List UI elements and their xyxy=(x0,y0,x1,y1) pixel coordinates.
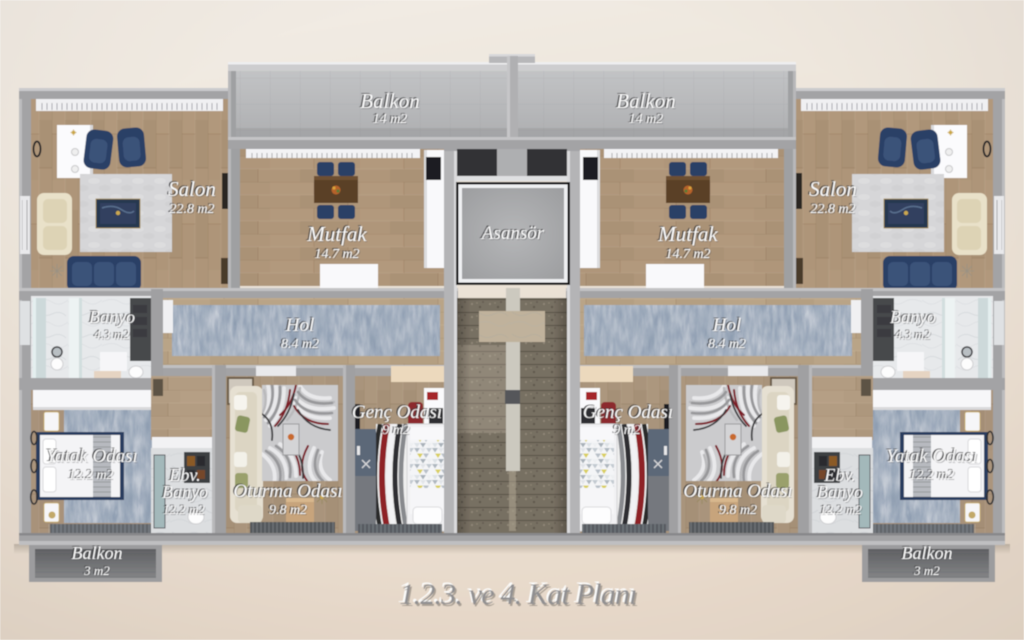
svg-text:9 m2: 9 m2 xyxy=(382,423,410,438)
svg-text:12.2 m2: 12.2 m2 xyxy=(163,502,205,517)
svg-text:14 m2: 14 m2 xyxy=(373,112,408,127)
svg-text:12.2 m2: 12.2 m2 xyxy=(820,502,862,517)
svg-text:14.7 m2: 14.7 m2 xyxy=(314,247,359,262)
svg-text:Balkon: Balkon xyxy=(360,89,419,113)
svg-text:4.3 m2: 4.3 m2 xyxy=(895,327,931,342)
svg-text:Genç Odası: Genç Odası xyxy=(583,402,673,423)
svg-text:Yatak Odası: Yatak Odası xyxy=(46,446,138,467)
svg-text:22.8 m2: 22.8 m2 xyxy=(810,202,855,217)
svg-text:3 m2: 3 m2 xyxy=(83,563,110,578)
svg-text:Banyo: Banyo xyxy=(162,482,208,502)
svg-text:Banyo: Banyo xyxy=(890,307,936,327)
svg-text:Asansör: Asansör xyxy=(480,223,545,244)
svg-text:Balkon: Balkon xyxy=(616,89,675,113)
svg-text:Balkon: Balkon xyxy=(72,543,123,563)
svg-text:8.4 m2: 8.4 m2 xyxy=(281,337,319,352)
svg-text:12.2 m2: 12.2 m2 xyxy=(909,468,954,483)
svg-text:Mutfak: Mutfak xyxy=(306,222,367,246)
svg-text:Hol: Hol xyxy=(285,315,315,336)
svg-text:Salon: Salon xyxy=(168,177,216,201)
svg-text:3 m2: 3 m2 xyxy=(913,563,940,578)
svg-text:9.8 m2: 9.8 m2 xyxy=(719,503,757,518)
svg-text:9.8 m2: 9.8 m2 xyxy=(269,503,307,518)
svg-text:Balkon: Balkon xyxy=(902,543,953,563)
svg-text:Hol: Hol xyxy=(712,315,742,336)
svg-text:9 m2: 9 m2 xyxy=(613,423,641,438)
svg-text:1.2.3. ve 4. Kat Planı: 1.2.3. ve 4. Kat Planı xyxy=(399,578,636,611)
svg-text:12.2 m2: 12.2 m2 xyxy=(68,468,113,483)
svg-text:Yatak Odası: Yatak Odası xyxy=(886,446,978,467)
svg-text:8.4 m2: 8.4 m2 xyxy=(708,337,746,352)
svg-text:Genç Odası: Genç Odası xyxy=(352,402,442,423)
svg-text:Oturma Odası: Oturma Odası xyxy=(233,481,342,502)
svg-text:Banyo: Banyo xyxy=(89,307,135,327)
svg-text:22.8 m2: 22.8 m2 xyxy=(169,202,214,217)
svg-text:Banyo: Banyo xyxy=(817,482,863,502)
svg-text:4.3 m2: 4.3 m2 xyxy=(94,327,130,342)
svg-text:14.7 m2: 14.7 m2 xyxy=(665,247,710,262)
svg-text:14 m2: 14 m2 xyxy=(629,112,664,127)
svg-text:Mutfak: Mutfak xyxy=(657,222,718,246)
svg-text:Salon: Salon xyxy=(809,177,857,201)
svg-text:Oturma Odası: Oturma Odası xyxy=(683,481,792,502)
